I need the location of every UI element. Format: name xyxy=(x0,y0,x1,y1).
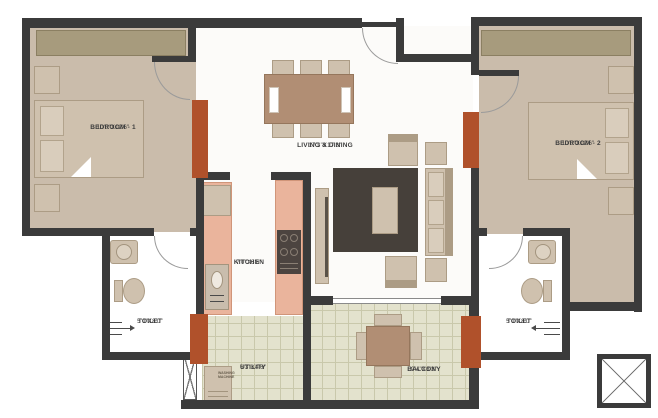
wall xyxy=(634,17,642,312)
room-dims: 10'0"X12'6" xyxy=(97,124,130,132)
balcony-chair xyxy=(374,366,402,378)
room-dims: 9'4"X8'3" xyxy=(411,366,437,374)
burner xyxy=(290,248,298,256)
wc-toilet xyxy=(520,278,552,304)
tv-console xyxy=(315,188,329,284)
blanket-fold xyxy=(71,157,91,177)
room-dims: 5'0"X8'0" xyxy=(506,318,532,326)
wall xyxy=(471,17,642,26)
shower-line xyxy=(544,322,560,323)
shower-line xyxy=(544,334,560,335)
fridge xyxy=(203,185,231,216)
coffee-table xyxy=(372,187,398,234)
pillow xyxy=(605,142,629,174)
dining-chair xyxy=(300,122,322,138)
hob-detail xyxy=(280,268,298,269)
wall xyxy=(303,296,333,305)
wall xyxy=(562,228,570,360)
wall xyxy=(102,228,110,360)
wall xyxy=(441,296,471,305)
accent-wall xyxy=(192,100,208,178)
wc-toilet xyxy=(114,278,146,304)
wall xyxy=(303,172,311,408)
basin-bowl xyxy=(116,244,132,260)
washing-machine: WASHING MACHINE xyxy=(204,366,232,402)
wc-bowl xyxy=(521,278,543,304)
wall xyxy=(471,17,479,75)
wall xyxy=(102,352,204,360)
burner xyxy=(280,234,288,242)
blanket-fold xyxy=(577,159,597,179)
wall xyxy=(479,228,487,236)
wall xyxy=(181,400,477,409)
wc-tank xyxy=(543,280,552,302)
wall xyxy=(471,352,570,360)
sofa-cushion xyxy=(428,200,444,225)
wall xyxy=(396,54,473,62)
room-dims: 10'0"X12'6" xyxy=(562,140,595,148)
room-dims: 5'0"X8'0" xyxy=(137,318,163,326)
wm-detail xyxy=(208,391,228,392)
balcony-table xyxy=(366,326,410,366)
wall xyxy=(564,302,642,311)
washing-machine-label: WASHING MACHINE xyxy=(205,371,231,375)
hob-detail xyxy=(280,263,298,264)
wardrobe xyxy=(36,30,186,56)
tv-screen xyxy=(325,197,328,277)
room-dims: 17'3"X17'3" xyxy=(309,142,342,150)
armchair xyxy=(385,256,417,288)
side-table xyxy=(425,258,447,282)
dining-chair xyxy=(272,122,294,138)
placemat xyxy=(269,87,279,113)
duct-shaft xyxy=(597,354,651,408)
pillow xyxy=(40,106,64,136)
accent-wall xyxy=(190,314,208,364)
sofa-cushion xyxy=(428,228,444,253)
kitchen-sink xyxy=(205,264,229,310)
balcony-chair xyxy=(374,314,402,326)
washbasin xyxy=(110,240,138,264)
wardrobe xyxy=(481,30,631,56)
wm-detail xyxy=(208,396,228,397)
basin-bowl xyxy=(535,244,551,260)
armchair xyxy=(388,134,418,166)
shower-arrow xyxy=(130,325,135,331)
sofa xyxy=(425,168,453,256)
dining-chair xyxy=(328,122,350,138)
armchair-back xyxy=(389,135,417,142)
dining-table xyxy=(264,74,354,124)
wc-bowl xyxy=(123,278,145,304)
nightstand xyxy=(34,66,60,94)
sofa-back xyxy=(445,169,452,255)
sink-detail xyxy=(210,295,224,296)
shower-symbol xyxy=(530,320,560,340)
wall xyxy=(22,18,30,236)
accent-wall xyxy=(461,316,481,368)
room-dims: 7'0"X8'6" xyxy=(236,259,262,267)
pillow xyxy=(40,140,64,172)
shower-symbol xyxy=(106,320,136,340)
side-table xyxy=(425,142,447,165)
wc-tank xyxy=(114,280,123,302)
sliding-glass-door xyxy=(333,298,441,304)
wall xyxy=(22,228,110,236)
pillow xyxy=(605,108,629,138)
nightstand xyxy=(34,184,60,212)
burner xyxy=(280,248,288,256)
sink-detail xyxy=(210,301,224,302)
accent-wall xyxy=(463,112,479,168)
sofa-cushion xyxy=(428,172,444,197)
placemat xyxy=(341,87,351,113)
shower-line xyxy=(536,328,560,329)
nightstand xyxy=(608,187,634,215)
balcony-chair xyxy=(410,332,422,360)
sink-basin xyxy=(211,271,223,289)
washbasin xyxy=(528,240,556,264)
floor-plan: WASHING MACHINE xyxy=(0,0,658,418)
washing-machine-label-line2: MACHINE xyxy=(218,375,234,379)
entrance-door-leaf xyxy=(362,22,398,27)
room-dims: 6'3"X4'6" xyxy=(240,364,266,372)
bed xyxy=(34,100,144,178)
wall xyxy=(190,228,204,236)
burner xyxy=(290,234,298,242)
nightstand xyxy=(608,66,634,94)
stove-hob xyxy=(277,230,301,274)
armchair-back xyxy=(386,280,416,287)
